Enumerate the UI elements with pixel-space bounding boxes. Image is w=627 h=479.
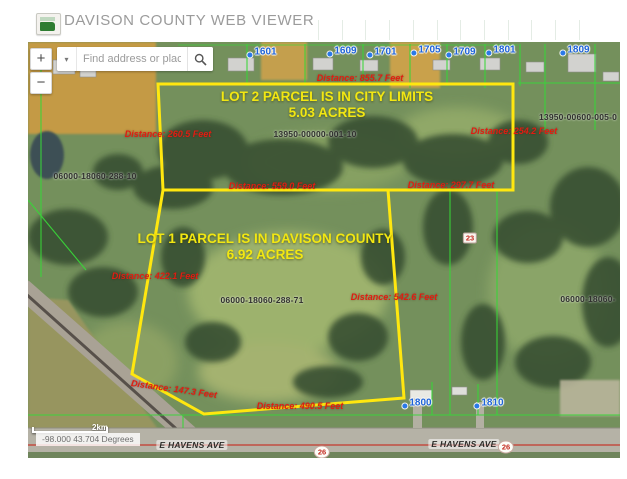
parcel-point-icon bbox=[327, 52, 332, 57]
map-viewport[interactable]: LOT 2 PARCEL IS IN CITY LIMITS5.03 ACRES… bbox=[28, 42, 620, 458]
parcel-number-1609: 1609 bbox=[327, 46, 356, 57]
parcel-point-icon bbox=[247, 53, 252, 58]
distance-label: Distance: 422.1 Feet bbox=[112, 271, 199, 281]
parcel-number-1701: 1701 bbox=[367, 47, 396, 58]
search-button[interactable] bbox=[187, 47, 213, 71]
header-dividers bbox=[318, 20, 580, 40]
app-window: DAVISON COUNTY WEB VIEWER bbox=[0, 0, 627, 479]
logo-detail bbox=[40, 17, 55, 21]
distance-label: Distance: 490.5 Feet bbox=[257, 401, 344, 411]
scale-bar: 2km bbox=[32, 423, 108, 433]
parcel-point-icon bbox=[402, 404, 407, 409]
search-input[interactable] bbox=[77, 47, 187, 71]
parcel-number-1800: 1800 bbox=[402, 398, 431, 409]
south-dakota-shape-icon bbox=[40, 22, 55, 31]
parcel-id-label: 13950-00000-001-10 bbox=[273, 129, 356, 139]
zoom-controls: + − bbox=[30, 48, 52, 96]
parcel-id-label: 06000-18060-288-10 bbox=[53, 171, 136, 181]
parcel-point-icon bbox=[446, 53, 451, 58]
distance-label: Distance: 559.0 Feet bbox=[229, 181, 316, 191]
parcel-point-icon bbox=[486, 51, 491, 56]
app-header: DAVISON COUNTY WEB VIEWER bbox=[0, 0, 627, 42]
app-title: DAVISON COUNTY WEB VIEWER bbox=[64, 12, 314, 29]
parcel-point-icon bbox=[474, 404, 479, 409]
parcel-number-1709: 1709 bbox=[446, 47, 475, 58]
lot-2-label: LOT 2 PARCEL IS IN CITY LIMITS5.03 ACRES bbox=[221, 89, 433, 121]
parcel-number-1801: 1801 bbox=[486, 45, 515, 56]
parcel-point-icon bbox=[411, 51, 416, 56]
parcel-point-icon bbox=[560, 51, 565, 56]
zoom-in-button[interactable]: + bbox=[30, 48, 52, 70]
road-name-label: E HAVENS AVE bbox=[156, 440, 227, 450]
distance-label: Distance: 855.7 Feet bbox=[317, 73, 404, 83]
road-name-label: E HAVENS AVE bbox=[428, 439, 499, 449]
highway-26-marker: 26 bbox=[314, 446, 330, 459]
search-dropdown-button[interactable]: ▾ bbox=[57, 47, 77, 71]
parcel-number-1601: 1601 bbox=[247, 47, 276, 58]
distance-label: Distance: 542.6 Feet bbox=[351, 292, 438, 302]
parcel-point-icon bbox=[367, 53, 372, 58]
county-logo-icon bbox=[36, 13, 61, 35]
corner-marker-23: 23 bbox=[463, 233, 477, 244]
distance-label: Distance: 254.2 Feet bbox=[471, 126, 558, 136]
parcel-number-1705: 1705 bbox=[411, 45, 440, 56]
parcel-id-label: 06000-18060- bbox=[560, 294, 615, 304]
lot-1-label: LOT 1 PARCEL IS IN DAVISON COUNTY6.92 AC… bbox=[137, 231, 392, 263]
coordinate-readout: -98.000 43.704 Degrees bbox=[36, 433, 140, 446]
chevron-down-icon: ▾ bbox=[64, 55, 68, 64]
parcel-id-label: 13950-00600-005-0 bbox=[539, 112, 617, 122]
distance-label: Distance: 297.7 Feet bbox=[408, 180, 495, 190]
search-icon bbox=[194, 53, 207, 66]
zoom-out-button[interactable]: − bbox=[30, 72, 52, 94]
parcel-number-1809: 1809 bbox=[560, 45, 589, 56]
parcel-number-1810: 1810 bbox=[474, 398, 503, 409]
search-box: ▾ bbox=[57, 47, 213, 71]
distance-label: Distance: 260.5 Feet bbox=[125, 129, 212, 139]
parcel-id-label: 06000-18060-288-71 bbox=[220, 295, 303, 305]
